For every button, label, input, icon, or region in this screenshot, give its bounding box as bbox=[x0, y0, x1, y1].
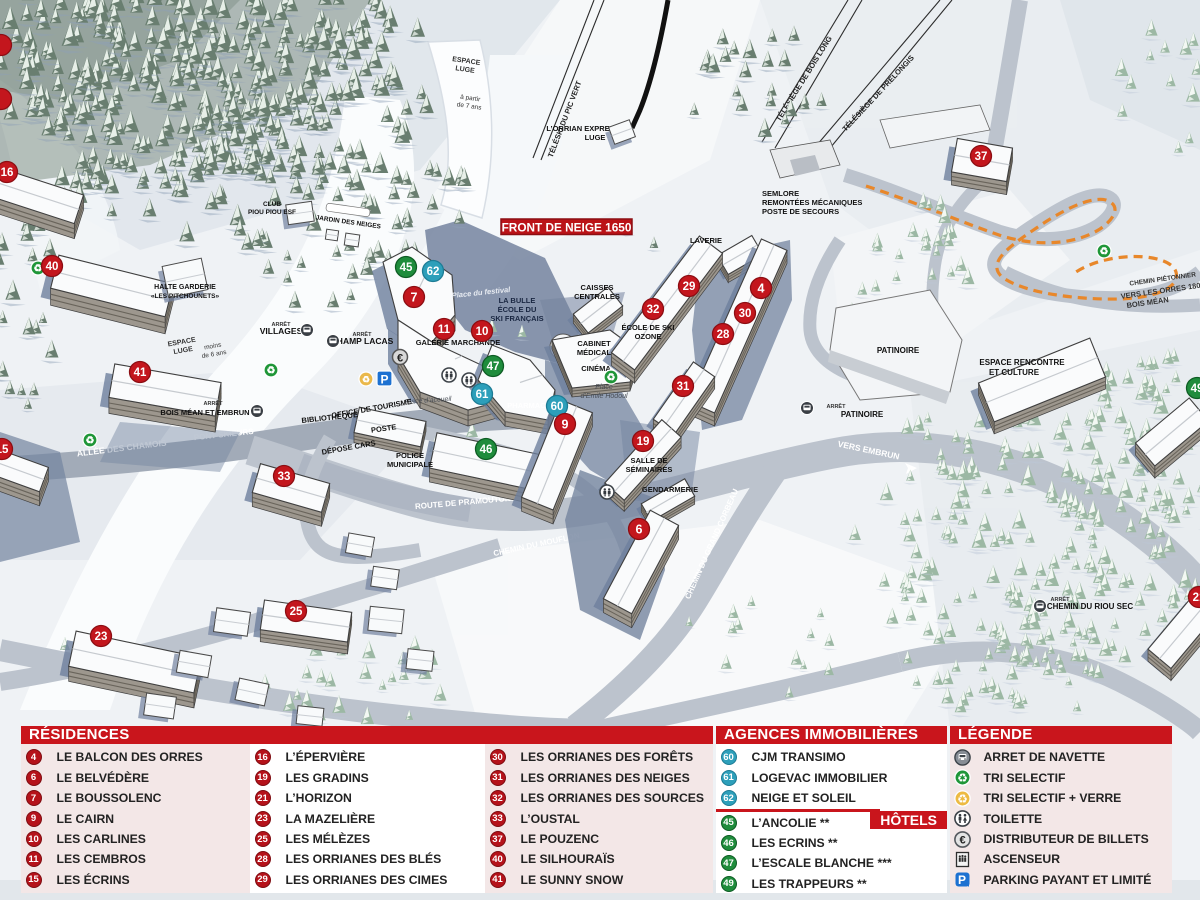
svg-text:♻: ♻ bbox=[957, 792, 968, 806]
svg-text:SÉMINAIRES: SÉMINAIRES bbox=[626, 465, 673, 474]
svg-text:46: 46 bbox=[480, 444, 493, 456]
svg-text:P: P bbox=[957, 873, 965, 887]
svg-text:21: 21 bbox=[1193, 592, 1200, 604]
svg-text:P: P bbox=[380, 373, 388, 387]
svg-text:31: 31 bbox=[677, 381, 690, 393]
svg-text:10: 10 bbox=[476, 326, 489, 338]
svg-text:CENTRALES: CENTRALES bbox=[574, 292, 620, 301]
svg-text:16: 16 bbox=[1, 167, 14, 179]
svg-text:GENDARMERIE: GENDARMERIE bbox=[642, 485, 698, 494]
svg-text:ARRÊT: ARRÊT bbox=[204, 399, 224, 407]
svg-text:29: 29 bbox=[683, 281, 696, 293]
svg-text:REMONTÉES MÉCANIQUES: REMONTÉES MÉCANIQUES bbox=[762, 198, 862, 207]
svg-text:4: 4 bbox=[758, 282, 765, 296]
svg-text:23: 23 bbox=[95, 631, 108, 643]
svg-text:15: 15 bbox=[0, 444, 9, 456]
svg-text:ARRÊT: ARRÊT bbox=[827, 402, 847, 410]
svg-text:CABINET: CABINET bbox=[577, 339, 611, 348]
svg-text:♻: ♻ bbox=[1100, 247, 1109, 258]
svg-text:30: 30 bbox=[739, 308, 752, 320]
svg-text:19: 19 bbox=[637, 436, 650, 448]
svg-text:Place: Place bbox=[595, 384, 613, 391]
svg-text:SALLE DE: SALLE DE bbox=[630, 456, 667, 465]
svg-text:POSTE DE SECOURS: POSTE DE SECOURS bbox=[762, 207, 839, 216]
svg-text:€: € bbox=[959, 834, 965, 846]
svg-text:SEMLORE: SEMLORE bbox=[762, 189, 799, 198]
svg-text:11: 11 bbox=[438, 324, 451, 336]
svg-text:LA BULLE: LA BULLE bbox=[499, 296, 536, 305]
svg-text:ÉCOLE DE SKI: ÉCOLE DE SKI bbox=[622, 323, 675, 332]
svg-text:PIOU PIOU ESF: PIOU PIOU ESF bbox=[248, 209, 296, 216]
svg-text:ÉCOLE DU: ÉCOLE DU bbox=[498, 305, 537, 314]
svg-text:45: 45 bbox=[400, 262, 413, 274]
svg-text:9: 9 bbox=[562, 418, 569, 432]
svg-text:«LES PITCHOUNETS»: «LES PITCHOUNETS» bbox=[151, 293, 220, 300]
svg-text:61: 61 bbox=[476, 389, 489, 401]
svg-text:SKI FRANÇAIS: SKI FRANÇAIS bbox=[490, 314, 543, 323]
svg-text:OZONE: OZONE bbox=[635, 332, 662, 341]
svg-text:♻: ♻ bbox=[86, 436, 95, 447]
svg-text:7: 7 bbox=[411, 291, 418, 305]
svg-text:ARRÊT: ARRÊT bbox=[353, 330, 373, 338]
svg-text:♻: ♻ bbox=[267, 366, 276, 377]
svg-text:41: 41 bbox=[134, 367, 147, 379]
svg-text:MUNICIPALE: MUNICIPALE bbox=[387, 460, 433, 469]
svg-text:25: 25 bbox=[290, 606, 303, 618]
svg-text:LUGE: LUGE bbox=[585, 133, 606, 142]
svg-text:♻: ♻ bbox=[957, 771, 968, 785]
svg-text:37: 37 bbox=[975, 151, 988, 163]
svg-text:♻: ♻ bbox=[362, 375, 370, 385]
svg-text:ARRÊT: ARRÊT bbox=[272, 320, 292, 328]
svg-text:LAVERIE: LAVERIE bbox=[690, 236, 722, 245]
svg-text:28: 28 bbox=[717, 329, 730, 341]
svg-text:♻: ♻ bbox=[607, 373, 616, 384]
svg-text:MÉDICAL: MÉDICAL bbox=[577, 348, 612, 357]
svg-text:60: 60 bbox=[551, 401, 564, 413]
svg-text:FRONT DE NEIGE 1650: FRONT DE NEIGE 1650 bbox=[502, 220, 632, 234]
svg-text:CAISSES: CAISSES bbox=[581, 283, 614, 292]
svg-text:CHEMIN DU RIOU SEC: CHEMIN DU RIOU SEC bbox=[1047, 602, 1133, 611]
svg-text:CLUB: CLUB bbox=[263, 201, 281, 208]
svg-text:ET CULTURE: ET CULTURE bbox=[989, 368, 1040, 377]
svg-text:d’Emile Hodoul: d’Emile Hodoul bbox=[580, 393, 628, 400]
svg-text:32: 32 bbox=[647, 304, 660, 316]
svg-text:62: 62 bbox=[427, 266, 440, 278]
svg-text:POLICE: POLICE bbox=[396, 451, 424, 460]
svg-text:6: 6 bbox=[636, 523, 643, 537]
svg-text:BOIS MÉAN ET EMBRUN: BOIS MÉAN ET EMBRUN bbox=[160, 408, 249, 417]
svg-text:33: 33 bbox=[278, 471, 291, 483]
svg-text:49: 49 bbox=[1191, 383, 1200, 395]
svg-text:47: 47 bbox=[487, 361, 500, 373]
svg-text:40: 40 bbox=[46, 261, 59, 273]
svg-text:PATINOIRE: PATINOIRE bbox=[841, 410, 884, 419]
svg-text:HALTE GARDERIE: HALTE GARDERIE bbox=[154, 284, 216, 291]
svg-text:€: € bbox=[397, 353, 403, 365]
svg-text:ESPACE RENCONTRE: ESPACE RENCONTRE bbox=[979, 358, 1065, 367]
svg-text:PATINOIRE: PATINOIRE bbox=[877, 346, 920, 355]
